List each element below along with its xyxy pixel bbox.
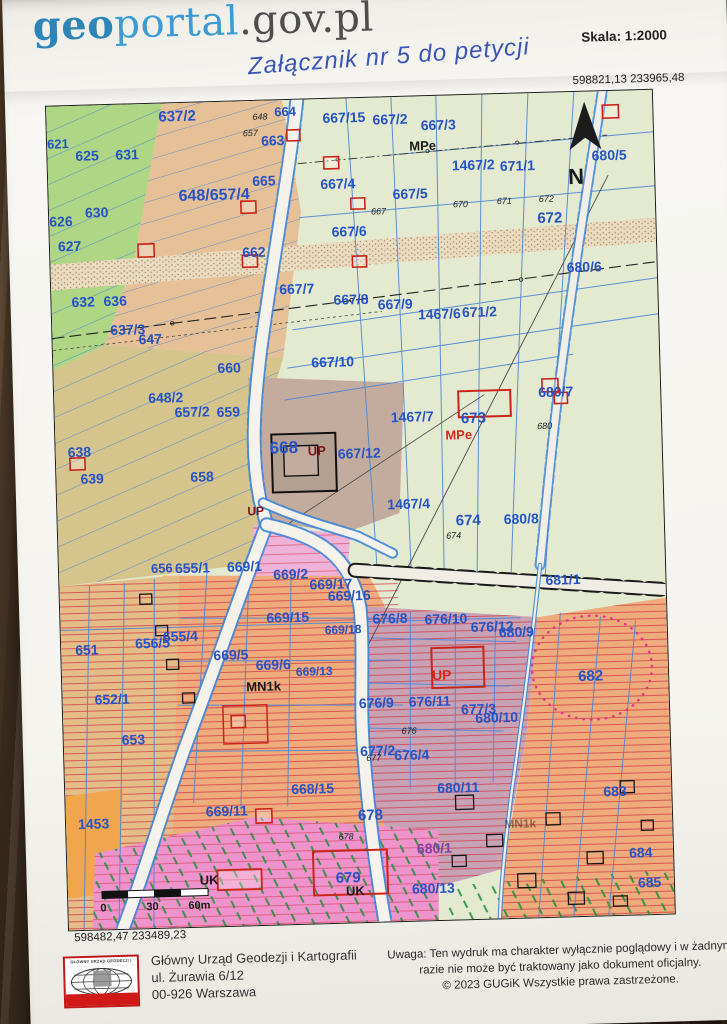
parcel-label-648-657-4: 648/657/4: [178, 186, 250, 205]
parcel-label-636: 636: [103, 293, 127, 310]
parcel-label-MN1k: MN1k: [504, 816, 537, 831]
footer-org-address: Główny Urząd Geodezji i Kartografii ul. …: [151, 946, 358, 1003]
parcel-label-658: 658: [190, 468, 214, 485]
parcel-label-653: 653: [122, 731, 146, 748]
geoportal-logo: geoportal.gov.pl: [32, 0, 374, 50]
parcel-label-676-4: 676/4: [394, 746, 430, 763]
parcel-label-680-11: 680/11: [437, 779, 480, 796]
parcel-label-657: 657: [243, 128, 259, 138]
parcel-label-667-9: 667/9: [377, 296, 413, 313]
parcel-label-676-11: 676/11: [409, 693, 452, 710]
parcel-label-UP: UP: [432, 667, 452, 684]
parcel-label-676: 676: [401, 726, 416, 736]
parcel-label-0: 0: [100, 902, 106, 914]
parcel-label-668: 668: [269, 438, 298, 458]
parcel-label-680-8: 680/8: [504, 510, 540, 527]
parcel-label-667-3: 667/3: [420, 116, 456, 133]
parcel-label-669-6: 669/6: [255, 656, 291, 673]
parcel-label-1467-6: 1467/6: [418, 305, 461, 322]
parcel-label-637-2: 637/2: [158, 108, 196, 126]
paper-sheet: geoportal.gov.pl Skala: 1:2000 Załącznik…: [2, 0, 727, 1024]
logo-portal-text: portal: [114, 0, 240, 48]
photo-stage: geoportal.gov.pl Skala: 1:2000 Załącznik…: [0, 0, 727, 1024]
parcel-label-671: 671: [497, 196, 512, 206]
parcel-label-680-1: 680/1: [417, 840, 453, 857]
map-canvas: 621625631637/2664663665648/657/4667/4667…: [46, 90, 675, 931]
parcel-label-676-10: 676/10: [424, 610, 467, 627]
parcel-label-682: 682: [578, 667, 603, 685]
parcel-label-667-2: 667/2: [372, 111, 408, 128]
parcel-label-655-1: 655/1: [175, 559, 211, 576]
parcel-label-680-6: 680/6: [566, 258, 602, 275]
parcel-label-667-15: 667/15: [322, 109, 365, 126]
parcel-label-669-2: 669/2: [273, 566, 309, 583]
parcel-label-677: 677: [366, 753, 382, 763]
parcel-label-667-7: 667/7: [279, 280, 315, 297]
parcel-label-681-1: 681/1: [545, 571, 581, 588]
parcel-label-673: 673: [461, 410, 486, 428]
parcel-label-60m: 60m: [188, 899, 211, 912]
parcel-label-667-4: 667/4: [320, 175, 356, 192]
parcel-label-1453: 1453: [78, 815, 110, 832]
parcel-label-1467-4: 1467/4: [387, 495, 430, 512]
parcel-label-MPe: MPe: [445, 427, 472, 443]
parcel-label-672: 672: [539, 194, 554, 204]
parcel-label-627: 627: [58, 238, 82, 255]
parcel-label-664: 664: [274, 104, 297, 120]
parcel-label-UP: UP: [308, 443, 327, 459]
parcel-label-684: 684: [629, 844, 653, 861]
gugik-logo: GŁÓWNY URZĄD GEODEZJI I KARTOGRAFII: [63, 954, 140, 1008]
parcel-label-MPe: MPe: [409, 138, 436, 154]
parcel-label-668-15: 668/15: [291, 780, 334, 797]
parcel-label-630: 630: [85, 204, 109, 221]
parcel-label-667: 667: [371, 206, 387, 216]
parcel-label-671-2: 671/2: [462, 303, 498, 320]
parcel-label-669-11: 669/11: [206, 802, 249, 819]
parcel-label-632: 632: [71, 293, 95, 310]
parcel-label-625: 625: [75, 147, 99, 164]
parcel-label-662: 662: [242, 244, 266, 261]
parcel-label-621: 621: [47, 136, 69, 152]
parcel-label-UK: UK: [199, 872, 219, 888]
parcel-label-669-15: 669/15: [266, 609, 309, 626]
parcel-label-626: 626: [49, 213, 73, 230]
parcel-label-676-9: 676/9: [359, 694, 395, 711]
parcel-label-667-12: 667/12: [338, 444, 381, 461]
parcel-label-648: 648: [252, 112, 267, 122]
parcel-label-659: 659: [216, 403, 240, 420]
parcel-label-670: 670: [453, 199, 468, 209]
parcel-label-669-16: 669/16: [328, 587, 371, 604]
parcel-label-667-5: 667/5: [392, 185, 428, 202]
parcel-label-680-5: 680/5: [591, 147, 627, 164]
parcel-label-680-13: 680/13: [412, 880, 455, 897]
logo-suffix-text: .gov.pl: [238, 0, 374, 44]
parcel-label-UP: UP: [247, 504, 264, 518]
parcel-label-657-2: 657/2: [174, 403, 210, 420]
parcel-label-685: 685: [638, 874, 662, 891]
parcel-label-660: 660: [217, 359, 241, 376]
parcel-label-674: 674: [446, 530, 461, 540]
parcel-label-651: 651: [75, 641, 99, 658]
parcel-label-680-10: 680/10: [475, 709, 518, 726]
parcel-label-680-9: 680/9: [499, 623, 535, 640]
parcel-label-1467-7: 1467/7: [391, 408, 434, 425]
parcel-label-667-10: 667/10: [311, 353, 354, 370]
parcel-label-1467-2: 1467/2: [452, 156, 495, 173]
parcel-label-678: 678: [338, 831, 353, 841]
parcel-label-639: 639: [80, 470, 104, 487]
parcel-label-647: 647: [138, 331, 162, 348]
map-corner-coords-bottom: 598482,47 233489,23: [74, 929, 186, 944]
parcel-label-656-5: 656/5: [135, 634, 171, 651]
parcel-label-667-6: 667/6: [331, 223, 367, 240]
parcel-label-667-8: 667/8: [333, 291, 369, 308]
parcel-label-638: 638: [67, 444, 91, 461]
parcel-label-656: 656: [151, 560, 173, 576]
parcel-label-671-1: 671/1: [500, 157, 536, 174]
parcel-label-676-8: 676/8: [372, 610, 408, 627]
parcel-label-680-7: 680/7: [538, 383, 574, 400]
parcel-label-680: 680: [537, 421, 552, 431]
gugik-logo-red-band: [66, 992, 138, 1006]
logo-g-glyph: geo: [32, 1, 115, 50]
parcel-label-669-1: 669/1: [227, 558, 263, 575]
parcel-label-MN1k: MN1k: [246, 678, 282, 694]
parcel-label-665: 665: [252, 172, 276, 189]
parcel-label-30: 30: [146, 901, 159, 913]
parcel-label-669-5: 669/5: [213, 646, 249, 663]
parcel-label-669-13: 669/13: [296, 664, 333, 679]
parcel-label-672: 672: [537, 209, 562, 227]
parcel-label-N: N: [568, 164, 585, 189]
parcel-label-678: 678: [358, 807, 383, 825]
footer-disclaimer: Uwaga: Ten wydruk ma charakter wyłącznie…: [377, 938, 727, 997]
parcel-label-683: 683: [603, 783, 627, 800]
parcel-label-652-1: 652/1: [94, 691, 130, 708]
parcel-label-UK: UK: [346, 883, 366, 899]
parcel-label-674: 674: [456, 512, 482, 530]
parcel-label-631: 631: [115, 146, 139, 163]
parcel-label-663: 663: [261, 132, 285, 149]
parcel-label-669-18: 669/18: [325, 622, 362, 637]
cadastral-map: 621625631637/2664663665648/657/4667/4667…: [45, 89, 676, 932]
